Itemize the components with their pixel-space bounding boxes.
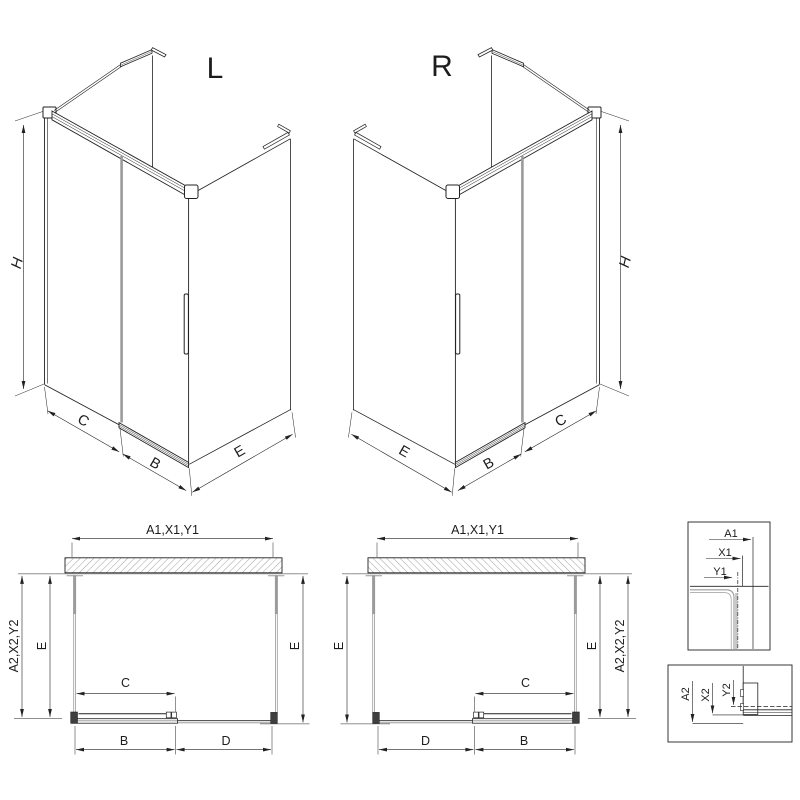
plan-r-dim-a2-label: A2,X2,Y2: [613, 620, 627, 673]
iso-view-l-lines: [15, 48, 296, 496]
technical-drawing-sheet: L H C B E R H C B E A1,X1,Y1 A2,X2,Y2 E …: [0, 0, 800, 800]
detail-wall-profile: A1 X1 Y1: [688, 522, 770, 650]
iso-l-dim-b-label: B: [147, 455, 163, 474]
plan-l-dim-top-label: A1,X1,Y1: [146, 523, 199, 537]
plan-view-l-lines: [14, 539, 310, 755]
iso-l-dim-e-label: E: [232, 442, 249, 461]
iso-view-r: R H C B E: [348, 48, 635, 496]
roller-tab-1: [741, 690, 744, 697]
iso-view-l: L H C B E: [8, 48, 296, 496]
iso-r-dim-h-label: H: [616, 255, 635, 270]
plan-r-dim-b-label: B: [520, 734, 528, 748]
plan-r-dim-d-label: D: [421, 734, 430, 748]
plan-view-l: A1,X1,Y1 A2,X2,Y2 E E C B D: [7, 523, 310, 755]
detail-dim-y2-label: Y2: [721, 683, 733, 696]
plan-l-dim-b-label: B: [120, 734, 128, 748]
drawing-canvas: L H C B E R H C B E A1,X1,Y1 A2,X2,Y2 E …: [0, 0, 800, 800]
iso-l-title: L: [207, 52, 224, 85]
wall-profile-section: [690, 590, 736, 649]
plan-r-dim-e-right-label: E: [585, 642, 599, 650]
detail-dim-y1-label: Y1: [713, 566, 726, 578]
iso-l-dim-h-label: H: [8, 256, 27, 271]
detail-dim-x2-label: X2: [700, 688, 712, 701]
plan-view-r: A1,X1,Y1 E E A2,X2,Y2 C D B: [332, 523, 636, 755]
detail-track-frame: [668, 665, 792, 742]
plan-l-dim-d-label: D: [221, 734, 230, 748]
detail-dim-a2-label: A2: [680, 687, 692, 700]
iso-r-dim-b-label: B: [481, 455, 497, 474]
iso-r-dim-e-label: E: [396, 443, 413, 462]
roller-tab-2: [741, 704, 744, 711]
plan-l-dim-e-right-label: E: [288, 642, 302, 650]
plan-r-dim-e-left-label: E: [332, 642, 346, 650]
plan-l-dim-c-label: C: [121, 676, 130, 690]
iso-view-r-lines: [348, 48, 629, 496]
detail-track: A2 X2 Y2: [668, 665, 792, 742]
plan-r-dim-top-label: A1,X1,Y1: [451, 523, 504, 537]
plan-l-dim-e-left-label: E: [35, 642, 49, 650]
detail-dim-x1-label: X1: [718, 547, 731, 559]
detail-dim-a1-label: A1: [724, 528, 737, 540]
iso-r-title: R: [431, 50, 453, 83]
plan-l-dim-a2-label: A2,X2,Y2: [7, 620, 21, 673]
plan-r-dim-c-label: C: [521, 676, 530, 690]
